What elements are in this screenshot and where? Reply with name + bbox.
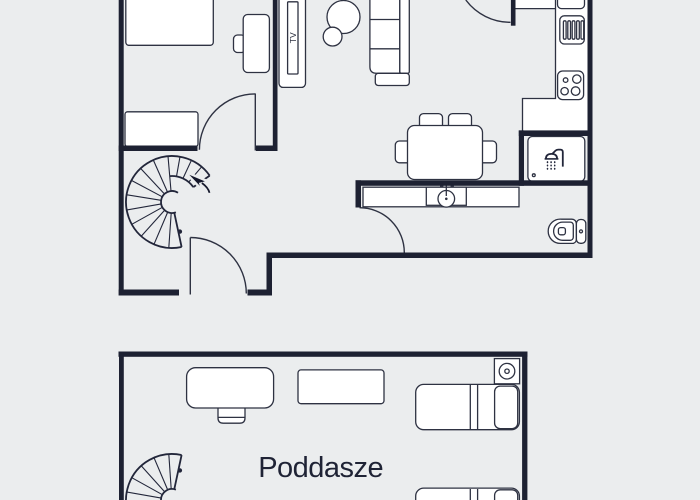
svg-text:TV: TV: [288, 32, 298, 43]
svg-text:Poddasze: Poddasze: [258, 452, 383, 484]
